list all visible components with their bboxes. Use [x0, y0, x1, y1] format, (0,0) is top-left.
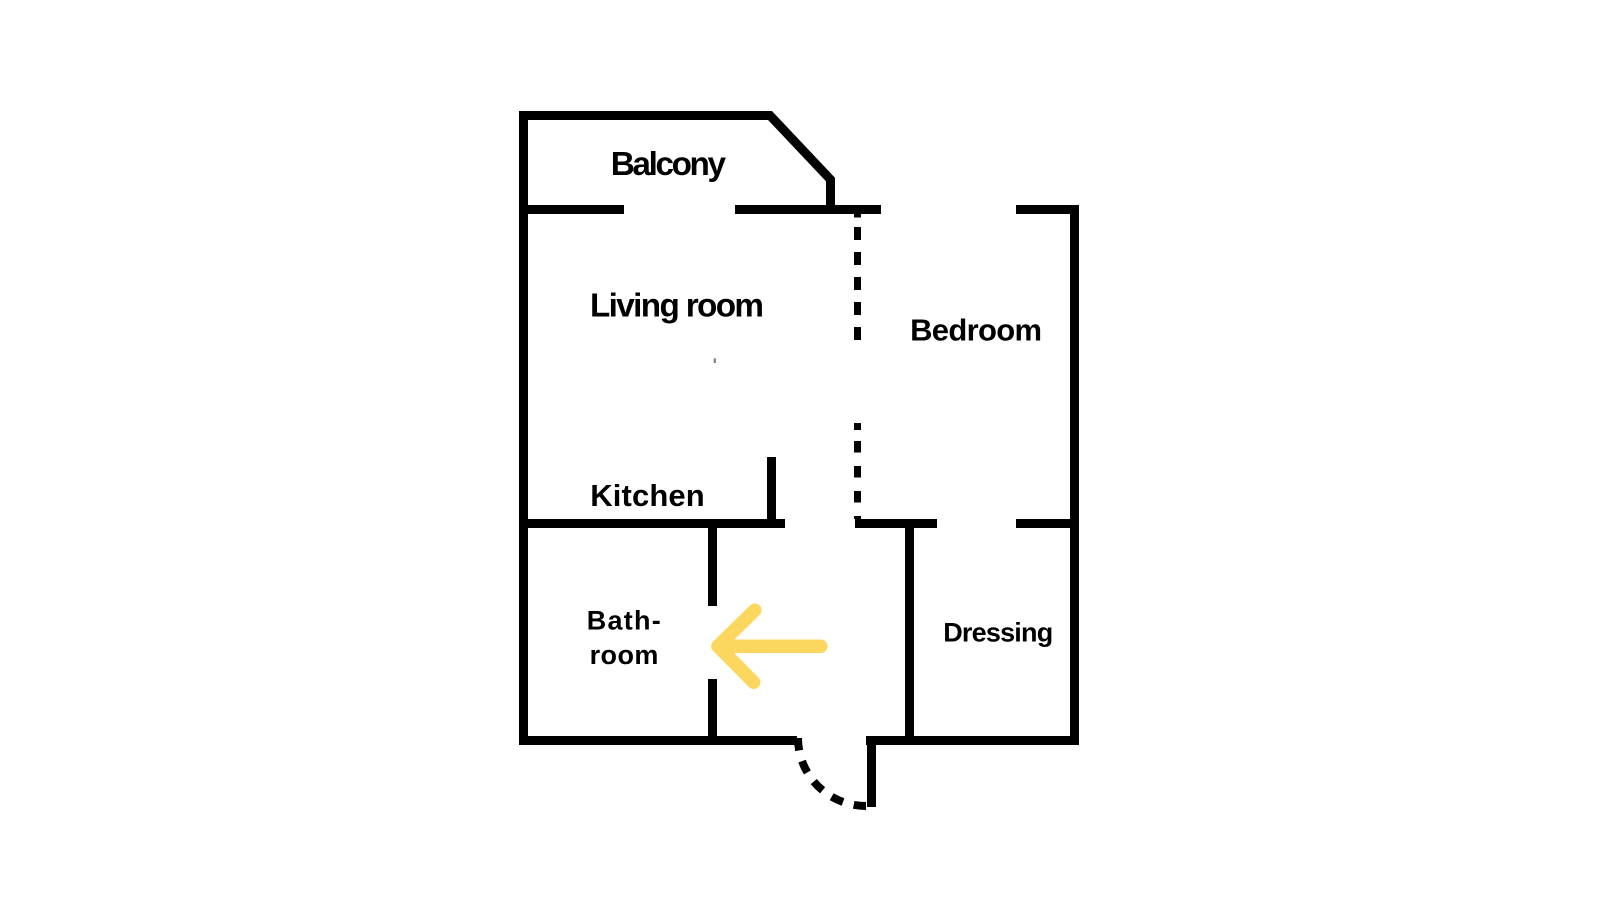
svg-text:Kitchen: Kitchen: [590, 478, 704, 513]
svg-text:Balcony: Balcony: [611, 146, 727, 183]
svg-text:room: room: [590, 640, 659, 670]
svg-text:Bedroom: Bedroom: [910, 313, 1042, 348]
svg-text:Living room: Living room: [590, 288, 764, 325]
svg-text:Bath-: Bath-: [587, 606, 661, 636]
svg-text:Dressing: Dressing: [943, 618, 1053, 648]
